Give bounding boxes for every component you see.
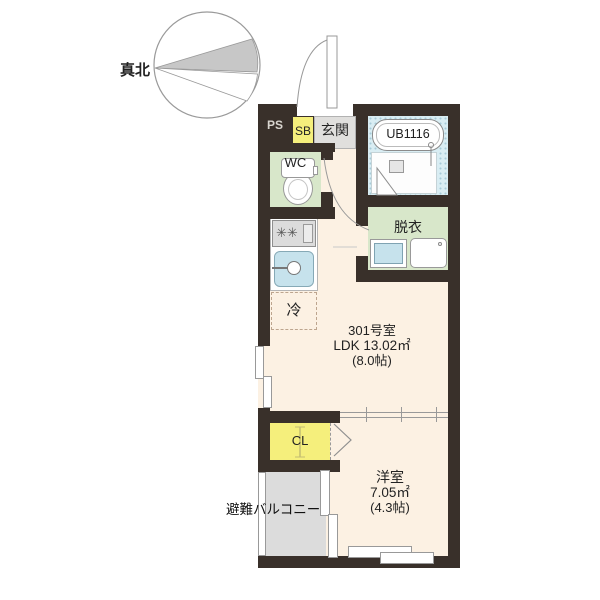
window-west-pane-b: [263, 376, 272, 408]
faucet-icon: [287, 261, 301, 275]
window-south-pane-b: [380, 552, 434, 564]
ldk-tatami: (8.0帖): [312, 353, 432, 368]
ldk-room-number: 301号室: [312, 323, 432, 338]
window-west-pane-a: [255, 346, 264, 379]
compass-label: 真北: [114, 62, 156, 80]
closet-dashed-front: [330, 423, 331, 460]
partition-tick-3: [436, 407, 437, 422]
compass-circle: [154, 12, 260, 118]
wall-wc-top: [258, 143, 335, 152]
entrance-door-opening: [297, 104, 353, 116]
washer-drum: [374, 243, 403, 264]
balcony-sliding-door-b: [328, 514, 338, 558]
wall-hall-bath-a: [356, 116, 368, 226]
wc-label: WC: [270, 156, 321, 171]
western-room-name: 洋室: [330, 469, 450, 485]
bath-inner-floor: [371, 152, 437, 194]
closet-label: CL: [270, 429, 330, 453]
sb-label: SB: [292, 124, 314, 140]
ldk-partition-track: [340, 412, 448, 418]
ps-label: PS: [258, 118, 292, 134]
bath-label: UB1116: [374, 122, 442, 148]
faucet-handle: [272, 267, 288, 269]
compass-north-wedge: [155, 39, 258, 72]
toilet-seat: [288, 179, 308, 200]
shower-drain: [389, 160, 404, 173]
fridge-label: 冷: [271, 296, 317, 326]
wall-closet-top: [258, 411, 340, 423]
dressing-label: 脱衣: [368, 220, 448, 236]
entrance-label: 玄関: [314, 122, 356, 140]
entrance-door-leaf: [327, 36, 337, 108]
washbasin-faucet-dot: [438, 242, 442, 246]
balcony-label: 避難バルコニー: [226, 502, 350, 518]
entrance-door-swing: [297, 40, 327, 107]
stove-burner-icon: ✳✳: [272, 221, 302, 245]
wall-left-upper: [258, 104, 270, 346]
compass-secondary-wedge: [155, 68, 258, 101]
ldk-area: LDK 13.02㎡: [312, 338, 432, 353]
wall-wc-bottom: [258, 207, 335, 219]
ldk-label-block: 301号室 LDK 13.02㎡ (8.0帖): [312, 323, 432, 368]
stove-grill: [303, 224, 313, 243]
western-room-area: 7.05㎡: [330, 485, 450, 500]
partition-tick-1: [366, 407, 367, 422]
wall-bath-bottom: [356, 195, 460, 207]
partition-tick-2: [401, 407, 402, 422]
floor-plan-canvas: ✳✳: [0, 0, 600, 600]
wall-dressing-bottom: [356, 270, 460, 282]
wall-wc-right-a: [321, 152, 333, 160]
